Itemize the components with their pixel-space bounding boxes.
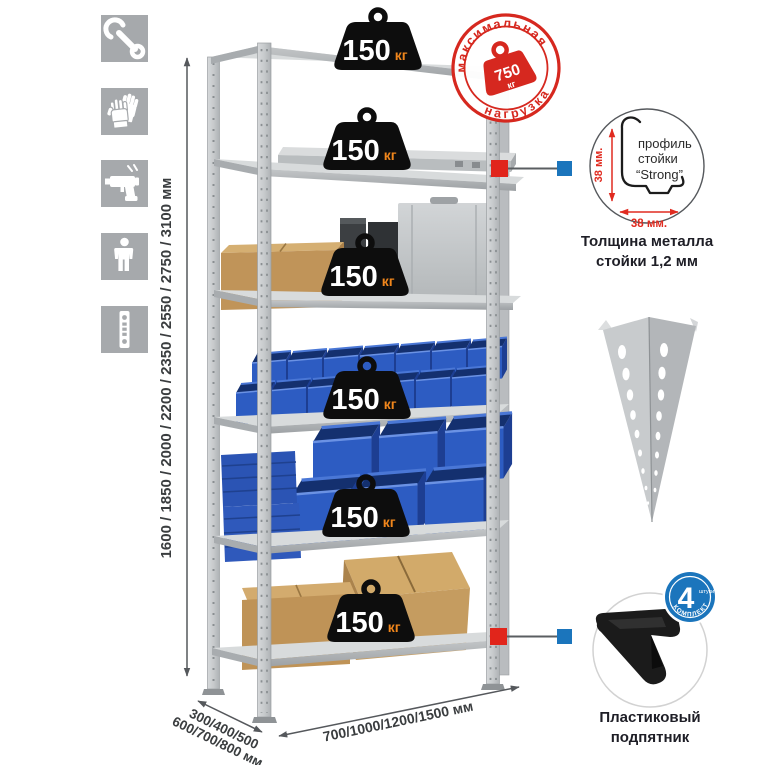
max-load-stamp: максимальная нагрузка 750 кг (439, 1, 573, 135)
foot-plate (481, 684, 505, 690)
red-marker (491, 160, 508, 177)
product-infographic: 1600 / 1850 / 2000 / 2200 / 2350 / 2550 … (0, 0, 765, 765)
blue-marker (557, 629, 572, 644)
profile-label-1: профиль (638, 136, 692, 151)
height-dimension: 1600 / 1850 / 2000 / 2200 / 2350 / 2550 … (158, 58, 187, 676)
weight-badge-2: 150кг (323, 110, 410, 170)
plastic-foot-caption-2: подпятник (611, 729, 690, 746)
profile-callout-connector (491, 160, 572, 177)
weight-badge-1: 150кг (334, 10, 421, 70)
profile-dim-horizontal: 38 мм. (631, 218, 667, 230)
width-dimension-label: 700/1000/1200/1500 мм (321, 698, 474, 745)
main-illustration: 1600 / 1850 / 2000 / 2200 / 2350 / 2550 … (0, 0, 765, 765)
foot-plate (252, 717, 277, 723)
corner-post-image (598, 317, 698, 522)
post-profile-detail: 38 мм. 38 мм. профиль стойки “Strong” (590, 109, 704, 230)
depth-dimension: 300/400/500 600/700/800 мм (170, 701, 272, 765)
foot-callout-connector (490, 628, 572, 645)
plastic-foot-caption-1: Пластиковый (599, 709, 700, 726)
metal-thickness-caption-2: стойки 1,2 мм (596, 253, 698, 270)
width-dimension: 700/1000/1200/1500 мм (279, 687, 519, 745)
post-front-left (258, 43, 272, 717)
post-front-right (487, 62, 500, 684)
foot-plate (202, 689, 225, 695)
included-count-note: штуки (699, 589, 714, 595)
profile-label-3: “Strong” (636, 167, 683, 182)
metal-thickness-caption-1: Толщина металла (581, 233, 714, 250)
profile-label-2: стойки (638, 151, 678, 166)
profile-dim-vertical: 38 мм. (593, 148, 605, 183)
blue-marker (557, 161, 572, 176)
height-dimension-label: 1600 / 1850 / 2000 / 2200 / 2350 / 2550 … (158, 178, 175, 559)
red-marker (490, 628, 507, 645)
